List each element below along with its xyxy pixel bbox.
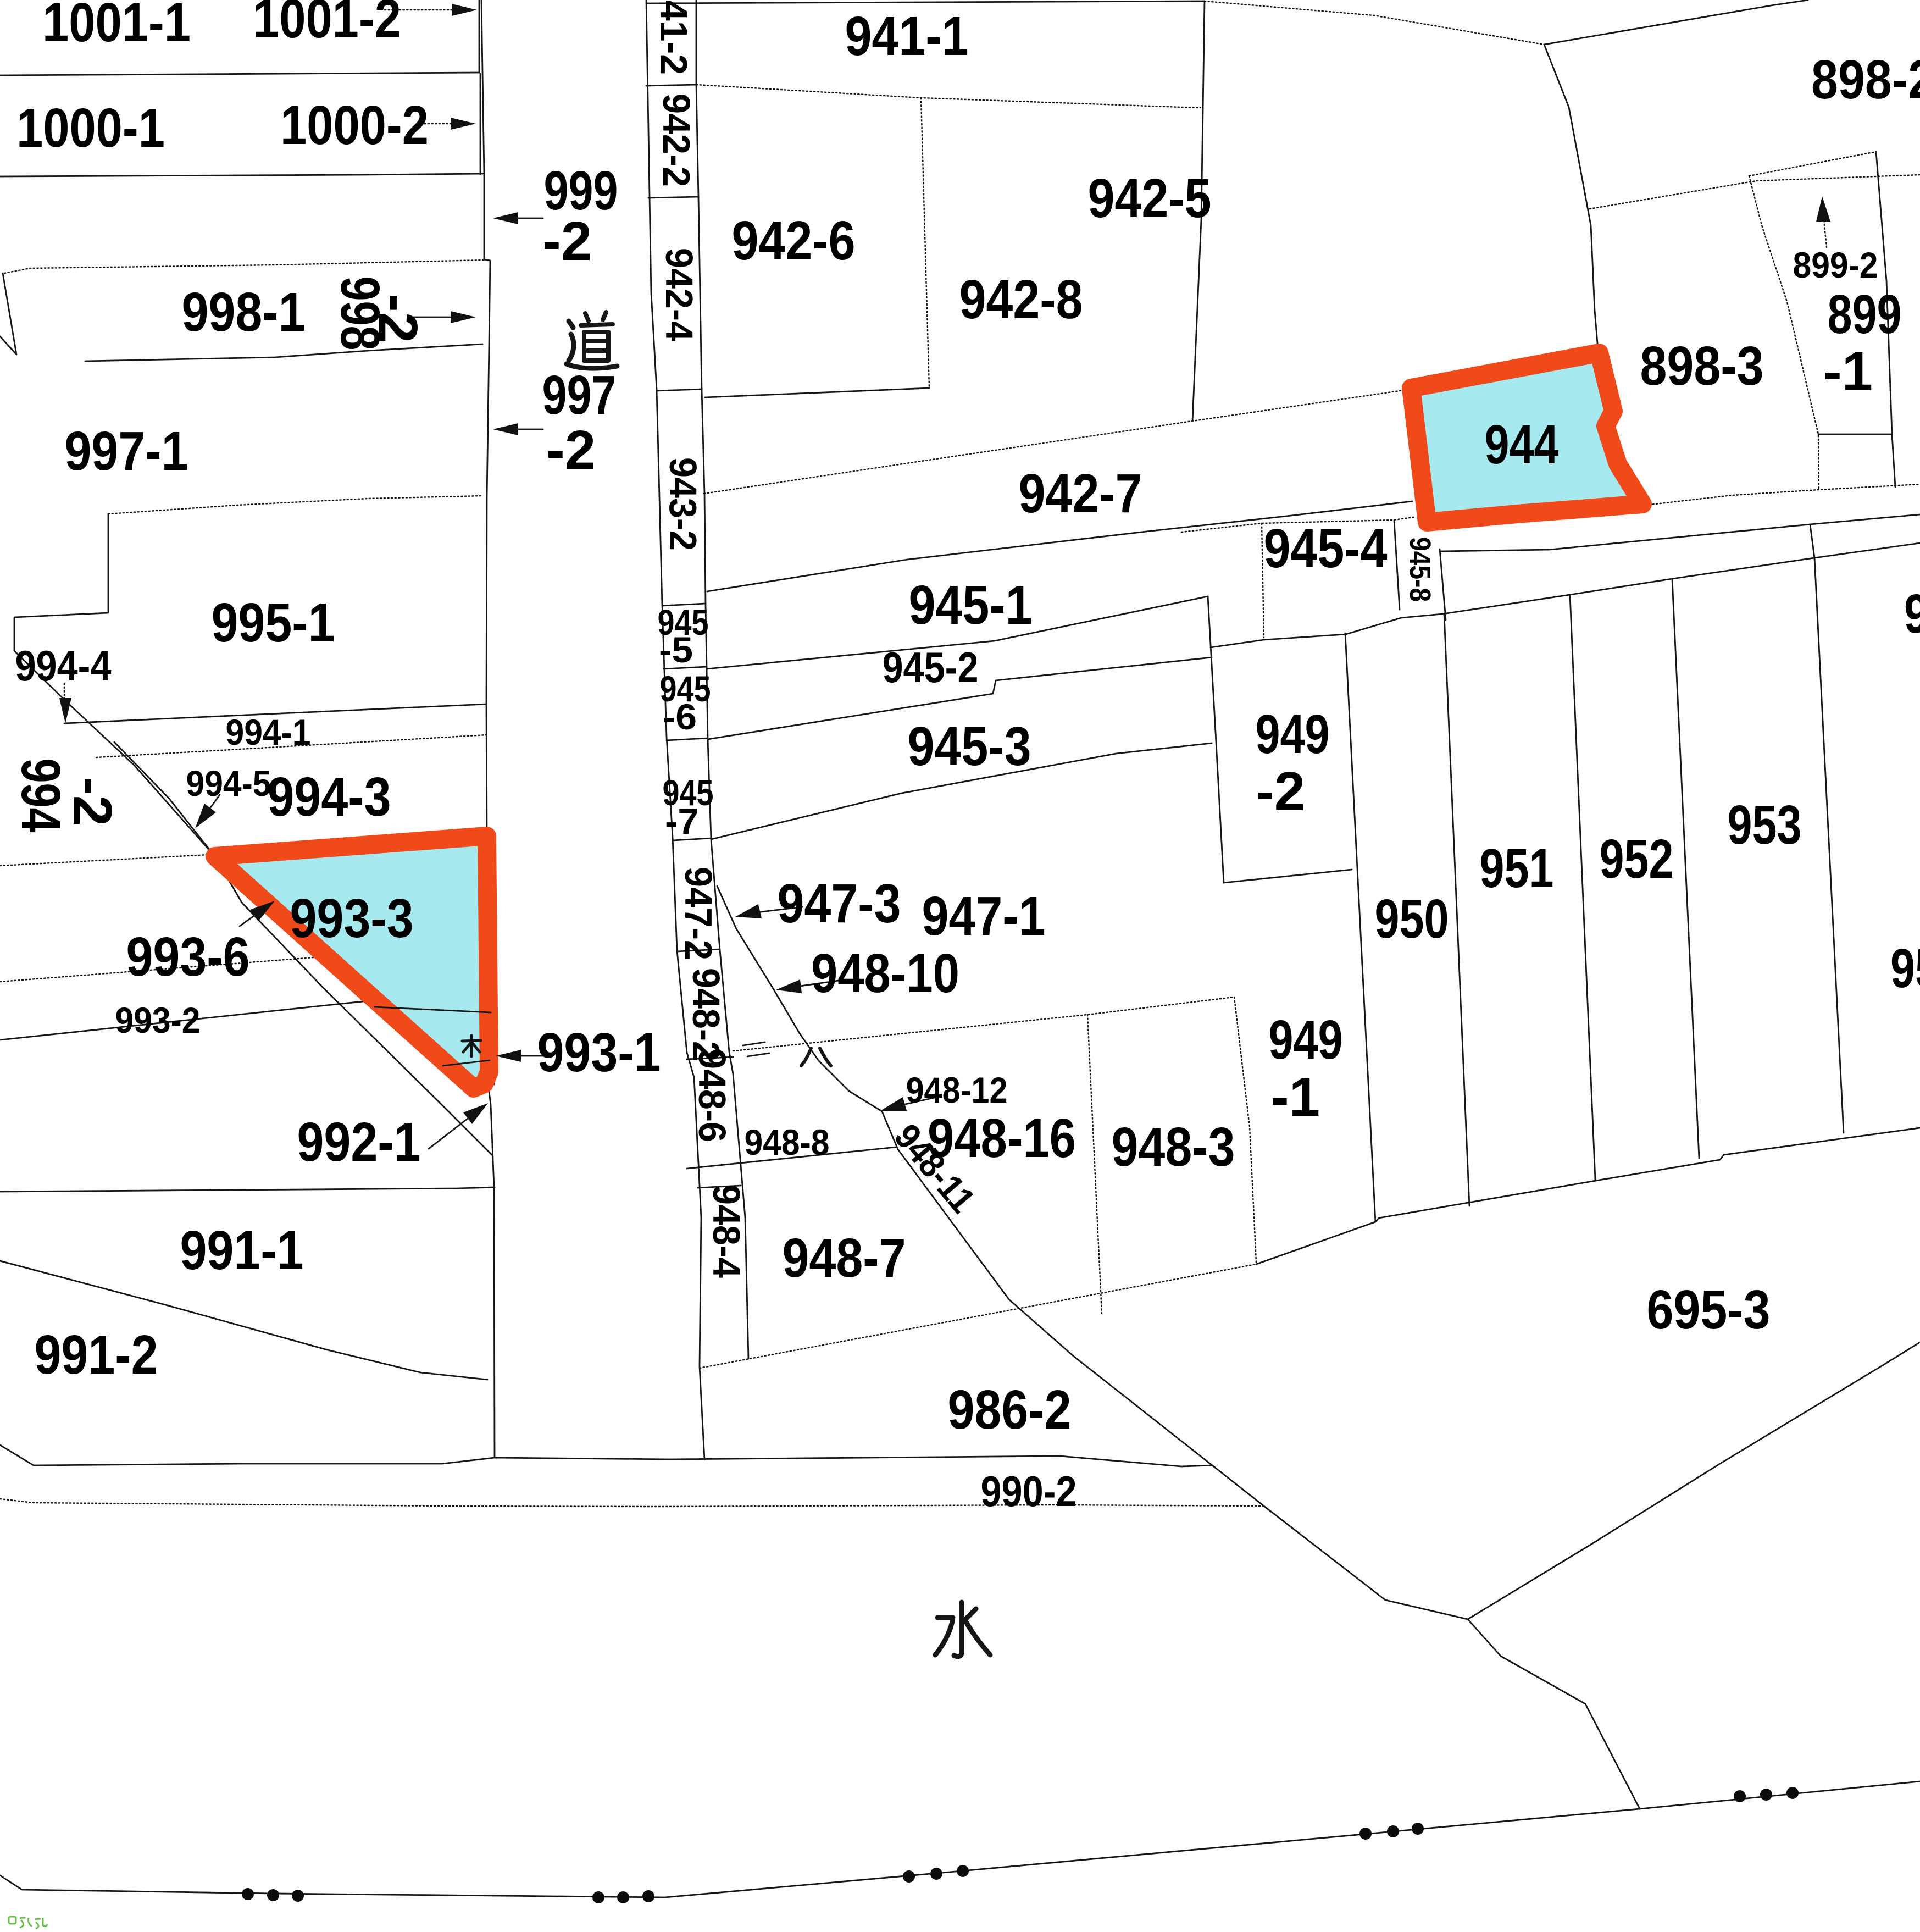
svg-text:-1: -1 xyxy=(1823,341,1873,402)
svg-text:950: 950 xyxy=(1375,888,1449,950)
svg-text:941-1: 941-1 xyxy=(845,5,969,67)
svg-text:-6: -6 xyxy=(663,696,697,737)
svg-text:991-1: 991-1 xyxy=(180,1220,304,1281)
svg-text:994-4: 994-4 xyxy=(15,641,112,690)
svg-text:994-5: 994-5 xyxy=(186,763,271,804)
svg-text:-7: -7 xyxy=(665,801,699,842)
svg-text:899: 899 xyxy=(1828,284,1902,345)
svg-text:942-8: 942-8 xyxy=(959,269,1083,330)
svg-text:942-7: 942-7 xyxy=(1019,463,1142,524)
svg-text:95: 95 xyxy=(1904,583,1920,645)
svg-text:947-3: 947-3 xyxy=(778,873,901,934)
svg-text:898-2: 898-2 xyxy=(1811,49,1920,110)
svg-text:1001-2: 1001-2 xyxy=(253,0,401,49)
svg-text:-5: -5 xyxy=(659,629,693,670)
svg-text:954: 954 xyxy=(1890,938,1920,999)
svg-text:948-8: 948-8 xyxy=(745,1122,830,1162)
svg-text:1000-1: 1000-1 xyxy=(16,97,165,159)
svg-text:953: 953 xyxy=(1728,794,1802,856)
svg-text:-1: -1 xyxy=(1270,1066,1320,1128)
svg-text:-2: -2 xyxy=(542,211,592,272)
svg-text:947-1: 947-1 xyxy=(922,885,1046,947)
svg-text:992-1: 992-1 xyxy=(297,1111,421,1173)
svg-text:41-2: 41-2 xyxy=(652,0,695,75)
svg-text:994-3: 994-3 xyxy=(268,766,391,828)
svg-text:994-1: 994-1 xyxy=(226,712,311,752)
svg-text:945-3: 945-3 xyxy=(908,716,1031,777)
svg-text:986-2: 986-2 xyxy=(948,1379,1072,1441)
svg-text:-2: -2 xyxy=(1256,761,1305,822)
svg-text:-2: -2 xyxy=(367,294,429,343)
svg-text:945-1: 945-1 xyxy=(909,574,1033,636)
svg-text:944: 944 xyxy=(1485,414,1559,475)
svg-text:949: 949 xyxy=(1256,704,1330,765)
svg-text:993-2: 993-2 xyxy=(115,1000,201,1040)
svg-text:945-2: 945-2 xyxy=(883,643,979,691)
svg-text:943-2: 943-2 xyxy=(662,457,704,551)
svg-text:945-8: 945-8 xyxy=(1403,537,1436,602)
svg-text:942-4: 942-4 xyxy=(658,248,701,341)
svg-text:1000-2: 1000-2 xyxy=(280,95,429,156)
svg-text:948-10: 948-10 xyxy=(811,943,959,1004)
svg-text:899-2: 899-2 xyxy=(1793,245,1878,285)
svg-text:997: 997 xyxy=(542,364,617,426)
svg-text:898-3: 898-3 xyxy=(1640,335,1764,397)
svg-text:948-2: 948-2 xyxy=(685,968,728,1061)
svg-text:997-1: 997-1 xyxy=(65,420,188,482)
svg-text:948-3: 948-3 xyxy=(1112,1116,1235,1178)
svg-text:998-1: 998-1 xyxy=(182,281,306,343)
svg-text:948-4: 948-4 xyxy=(705,1184,748,1278)
svg-text:1001-1: 1001-1 xyxy=(42,0,191,53)
svg-text:952: 952 xyxy=(1600,828,1674,890)
svg-text:993-6: 993-6 xyxy=(126,926,250,988)
svg-text:990-2: 990-2 xyxy=(981,1467,1077,1515)
svg-text:948-12: 948-12 xyxy=(906,1070,1008,1110)
svg-text:-2: -2 xyxy=(62,777,123,826)
svg-text:947-2: 947-2 xyxy=(677,867,720,960)
svg-text:995-1: 995-1 xyxy=(212,592,335,654)
svg-text:993-1: 993-1 xyxy=(537,1022,661,1083)
svg-text:695-3: 695-3 xyxy=(1647,1279,1771,1341)
svg-text:948-6: 948-6 xyxy=(691,1049,734,1142)
svg-text:942-6: 942-6 xyxy=(732,210,856,272)
svg-text:951: 951 xyxy=(1480,838,1554,899)
svg-text:942-5: 942-5 xyxy=(1088,168,1212,229)
svg-text:942-2: 942-2 xyxy=(655,93,698,187)
svg-text:945-4: 945-4 xyxy=(1264,518,1388,579)
svg-text:991-2: 991-2 xyxy=(35,1324,158,1386)
svg-text:949: 949 xyxy=(1269,1009,1343,1071)
svg-text:948-7: 948-7 xyxy=(783,1227,906,1289)
svg-text:-2: -2 xyxy=(546,419,596,481)
svg-text:993-3: 993-3 xyxy=(290,888,414,949)
